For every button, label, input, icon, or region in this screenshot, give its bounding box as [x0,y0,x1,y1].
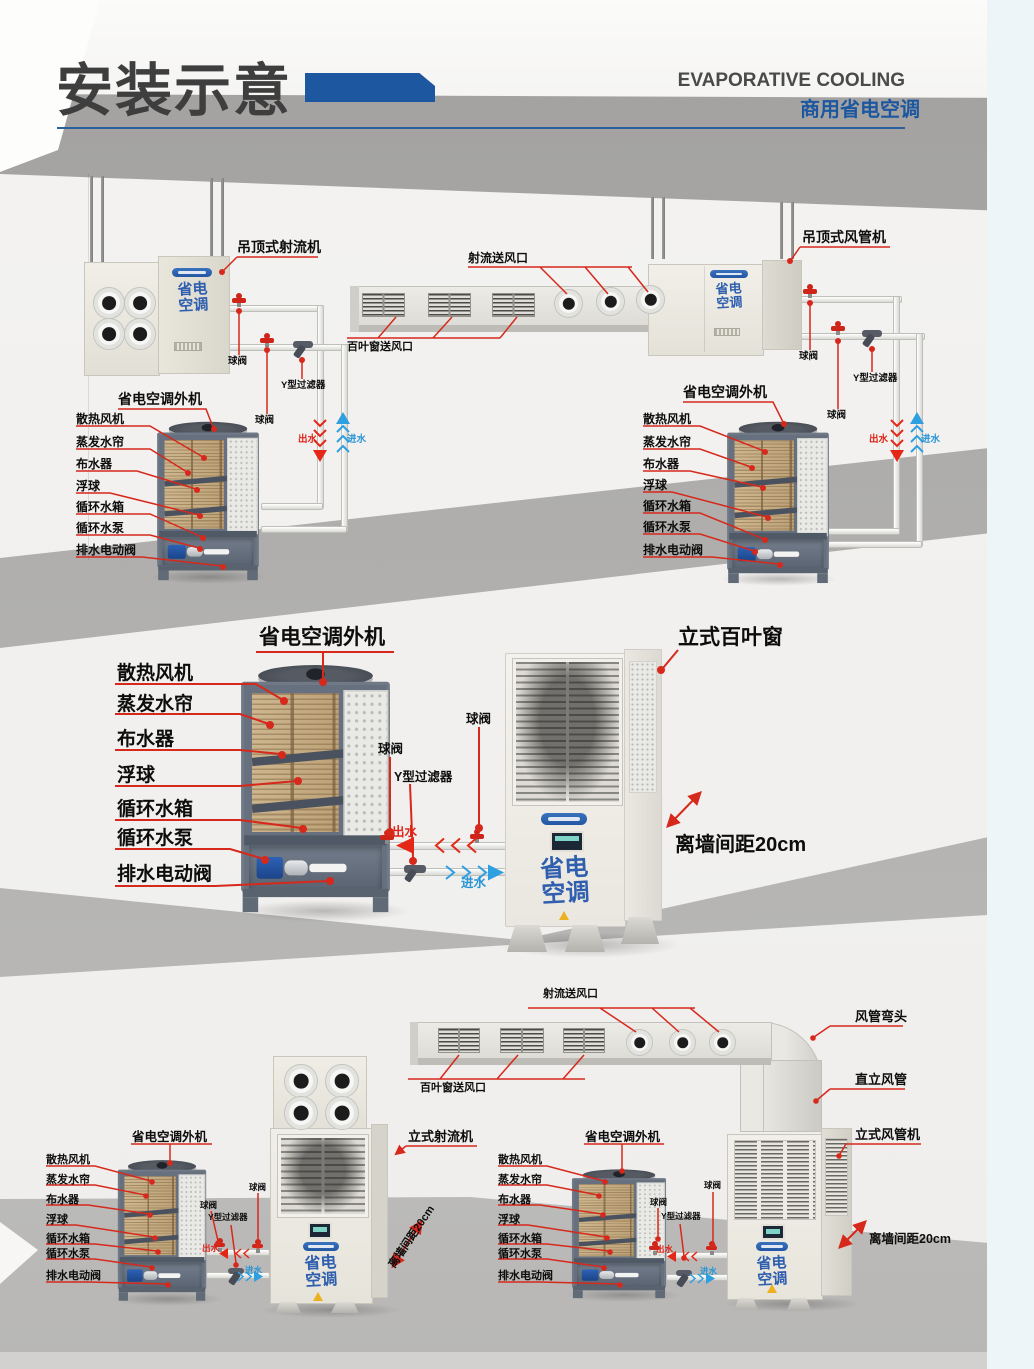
water-pipe [228,305,324,312]
unit-side [762,260,802,350]
brand-badge [303,1242,339,1251]
label-component-pump: 循环水泵 [643,521,691,534]
right-margin-strip [987,0,1034,1369]
label-vertical-jet-unit: 立式射流机 [408,1130,473,1145]
label-y-filter: Y型过滤器 [281,381,325,392]
vent-grille-side [825,1138,848,1216]
label-component-fan: 散热风机 [643,413,691,426]
duct-endcap [350,286,359,332]
jet-nozzle [325,1064,359,1098]
hanger-rod [791,202,794,259]
label-louver-outlet: 百叶窗送风口 [420,1082,486,1094]
label-wall-distance: 离墙间距20cm [869,1232,951,1246]
label-louver-outlet: 百叶窗送风口 [347,341,413,353]
control-display [761,1224,785,1240]
header-rule [57,127,905,129]
vent-grille [734,1140,816,1220]
label-water-out: 出水 [298,435,317,446]
control-display [550,831,584,852]
vertical-jet-unit: 省电 空调 [263,1056,393,1313]
title-badge [305,73,435,102]
ceiling-duct-unit: 省电 空调 [648,256,800,356]
jet-outlet-nozzle [636,285,665,314]
foot [507,925,547,952]
ball-valve [706,1246,717,1250]
warning-icon [313,1292,323,1301]
water-pipe [828,541,922,548]
unit-front [84,262,160,376]
label-y-filter: Y型过滤器 [853,374,897,385]
louver-outlet-grille [438,1028,480,1053]
label-outdoor-unit: 省电空调外机 [118,392,202,408]
label-component-drain-valve: 排水电动阀 [46,1270,101,1282]
label-vertical-louver-unit: 立式百叶窗 [678,626,783,650]
label-ball-valve: 球阀 [255,416,274,427]
unit-side [371,1124,388,1298]
water-out-pipe [386,842,508,850]
vertical-louver-unit: 省电 空调 [505,645,660,952]
water-pipe [893,296,900,534]
label-component-float: 浮球 [76,480,100,493]
side-perforation [629,661,657,793]
label-y-filter: Y型过滤器 [661,1212,701,1222]
duct-endcap [410,1022,418,1065]
jet-nozzle [93,287,125,319]
brand-logo: 省电 空调 [296,1255,346,1291]
louver-outlet-grille [500,1028,544,1053]
label-component-pump: 循环水泵 [498,1248,542,1260]
label-outdoor-unit: 省电空调外机 [683,385,767,401]
hanger-rod [221,178,224,262]
label-outdoor-unit: 省电空调外机 [585,1130,660,1144]
label-component-drain-valve: 排水电动阀 [643,544,703,557]
ball-valve [470,834,484,839]
page-title: 安装示意 [56,60,292,124]
perforated-panel [227,438,258,534]
louver-outlet-grille [428,293,471,317]
label-water-out: 出水 [869,435,888,446]
foot [565,925,605,952]
louver-outlet-grille [563,1028,605,1053]
label-component-fan: 散热风机 [498,1154,542,1166]
unit-front [648,264,764,356]
label-component-distributor: 布水器 [76,458,112,471]
subtitle-en: EVAPORATIVE COOLING [605,70,905,91]
y-filter [293,341,313,348]
label-component-tank: 循环水箱 [76,501,124,514]
vertical-duct [763,1060,822,1132]
label-vertical-duct: 直立风管 [855,1073,907,1088]
label-component-fan: 散热风机 [117,663,193,684]
jet-outlet-nozzle [709,1029,736,1056]
brand-badge [756,1242,788,1251]
label-ceiling-duct-unit: 吊顶式风管机 [802,230,886,246]
brand-logo: 省电 空调 [532,855,599,908]
hanger-rod [210,178,213,262]
subtitle-cn: 商用省电空调 [620,99,920,121]
jet-nozzle [284,1064,318,1098]
label-ball-valve: 球阀 [378,742,403,756]
water-pipe [261,503,323,510]
hanger-rod [651,197,654,259]
perforated-panel [343,690,388,840]
water-pump [257,857,283,879]
label-component-tank: 循环水箱 [46,1233,90,1245]
water-pipe [228,344,350,351]
label-component-float: 浮球 [117,765,155,786]
label-component-float: 浮球 [643,479,667,492]
water-pipe [828,528,900,535]
label-component-drain-valve: 排水电动阀 [76,544,136,557]
label-component-float: 浮球 [498,1214,520,1226]
jet-nozzle [284,1096,318,1130]
louver-grille [513,659,622,805]
brand-badge [541,813,587,825]
jet-nozzle [93,318,125,350]
label-component-fan: 散热风机 [46,1154,90,1166]
jet-outlet-nozzle [554,289,583,318]
label-water-out: 出水 [202,1244,219,1254]
y-filter [228,1268,244,1274]
water-out-pipe [666,1252,730,1259]
label-water-in: 进水 [245,1266,262,1276]
ball-valve [831,326,845,331]
label-component-distributor: 布水器 [117,729,174,750]
water-pump [127,1269,143,1281]
label-water-in: 进水 [700,1267,717,1277]
y-filter [862,330,882,337]
label-component-distributor: 布水器 [643,458,679,471]
duct-lip [410,1058,771,1065]
label-water-out: 出水 [656,1245,673,1255]
brand-logo: 省电 空调 [169,281,217,315]
hanger-rod [662,197,665,259]
jet-nozzle [124,318,156,350]
label-water-in: 进水 [347,435,366,446]
label-water-in: 进水 [461,876,486,890]
jet-nozzle [124,287,156,319]
jet-outlet-nozzle [596,287,625,316]
label-component-float: 浮球 [46,1214,68,1226]
outdoor-unit [570,1172,668,1298]
ball-valve [803,289,817,294]
duct-lip [350,325,663,332]
label-water-in: 进水 [921,435,940,446]
vertical-duct-machine: 省电 空调 [727,1126,850,1310]
label-ball-valve: 球阀 [228,357,247,368]
label-component-pump: 循环水泵 [46,1248,90,1260]
label-component-drain-valve: 排水电动阀 [117,864,212,885]
label-ball-valve: 球阀 [704,1181,721,1191]
label-component-pad: 蒸发水帘 [76,436,124,449]
label-component-drain-valve: 排水电动阀 [498,1270,553,1282]
water-pipe [783,333,925,340]
hanger-rod [780,202,783,259]
label-y-filter: Y型过滤器 [208,1213,248,1223]
water-pipe [317,305,324,509]
ball-valve [252,1244,263,1248]
vent-slot [174,342,202,351]
bottom-strip [0,1352,1034,1369]
label-component-distributor: 布水器 [498,1194,531,1206]
label-jet-outlet: 射流送风口 [468,252,528,265]
y-filter [676,1270,692,1276]
outdoor-unit [725,425,831,583]
label-y-filter: Y型过滤器 [394,770,452,784]
label-component-tank: 循环水箱 [498,1233,542,1245]
louver-grille [278,1135,368,1217]
label-outdoor-unit: 省电空调外机 [259,626,385,650]
control-display [308,1222,332,1239]
ball-valve [232,298,246,303]
panel-seam [704,266,705,352]
label-jet-outlet: 射流送风口 [543,988,598,1000]
perforated-panel [797,438,828,536]
label-outdoor-unit: 省电空调外机 [132,1130,207,1144]
brand-logo: 省电 空调 [749,1255,795,1288]
hanger-rod [90,176,93,262]
ball-valve [260,338,274,343]
label-water-out: 出水 [392,825,417,839]
label-component-tank: 循环水箱 [117,799,193,820]
label-ball-valve: 球阀 [650,1198,667,1208]
jet-nozzle [325,1096,359,1130]
water-pump [582,1269,599,1280]
ceiling-jet-unit: 省电 空调 [84,256,228,376]
label-component-pad: 蒸发水帘 [117,694,193,715]
label-component-pump: 循环水泵 [76,522,124,535]
label-wall-distance: 离墙间距20cm [675,834,806,856]
brand-badge [172,268,212,277]
water-pipe [261,526,347,533]
label-ball-valve: 球阀 [827,411,846,422]
label-component-pump: 循环水泵 [117,828,193,849]
outdoor-unit [116,1163,208,1301]
outdoor-unit [155,425,261,580]
label-component-pad: 蒸发水帘 [643,436,691,449]
label-component-tank: 循环水箱 [643,500,691,513]
jet-outlet-nozzle [626,1029,653,1056]
label-duct-elbow: 风管弯头 [855,1010,907,1025]
label-component-fan: 散热风机 [76,413,124,426]
water-pump [738,547,756,561]
water-pump [168,545,186,559]
water-in-pipe [666,1274,730,1281]
hanger-rod [101,176,104,262]
jet-outlet-nozzle [669,1029,696,1056]
label-ball-valve: 球阀 [466,712,491,726]
poster: 安装示意 EVAPORATIVE COOLING 商用省电空调 [0,0,1034,1369]
label-component-distributor: 布水器 [46,1194,79,1206]
label-ball-valve: 球阀 [200,1201,217,1211]
label-ceiling-jet-unit: 吊顶式射流机 [237,240,321,256]
brand-badge [710,270,748,278]
vent-slot [714,328,740,336]
louver-outlet-grille [492,293,535,317]
outdoor-unit [238,670,393,912]
foot [621,917,659,944]
label-ball-valve: 球阀 [249,1183,266,1193]
label-component-pad: 蒸发水帘 [498,1174,542,1186]
louver-outlet-grille [362,293,405,317]
label-component-pad: 蒸发水帘 [46,1174,90,1186]
label-ball-valve: 球阀 [799,352,818,363]
brand-logo: 省电 空调 [709,281,748,310]
label-vertical-duct-unit: 立式风管机 [855,1128,920,1143]
y-filter [404,865,426,873]
warning-icon [559,911,569,920]
